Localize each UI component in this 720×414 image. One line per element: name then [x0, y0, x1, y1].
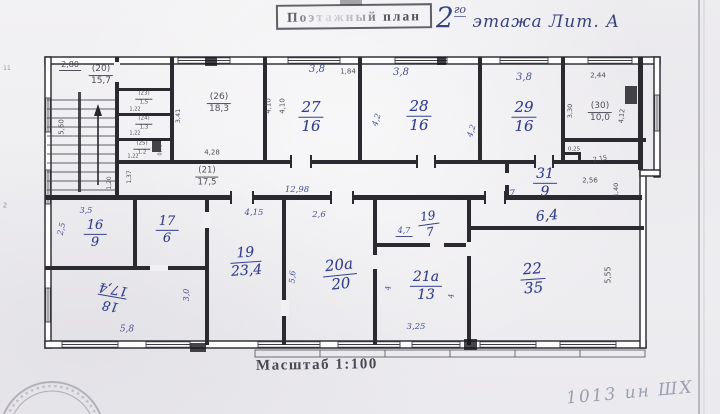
scan-edge-mark: 2	[3, 203, 7, 210]
dimension-label: 3,8	[516, 73, 532, 83]
room-label: 2916	[511, 100, 536, 135]
room-label: 2816	[406, 99, 431, 134]
room-label: 1817,4	[95, 280, 129, 315]
room-label: 21а13	[410, 270, 442, 302]
dimension-label: 3,25	[407, 323, 426, 332]
room-label: 1923,4	[229, 245, 262, 279]
dimension-label: 5,6	[289, 270, 298, 283]
dimension-label: 1,20	[107, 176, 113, 189]
floor-number: 2	[436, 1, 454, 34]
dimension-label: 3,8	[309, 65, 325, 75]
dimension-label: 5,55	[604, 267, 612, 284]
dimension-label: 4,12	[618, 108, 626, 123]
room-label: 2716	[298, 100, 323, 135]
room-label: (21)17,5	[195, 167, 218, 188]
dimension-label: 5,60	[59, 119, 66, 135]
room-label: 2235	[519, 261, 546, 297]
room-label: 169	[84, 219, 107, 249]
room-label: 176	[156, 215, 179, 245]
room-label: 319	[533, 167, 557, 199]
room-label: (26)18,3	[207, 93, 231, 115]
dimension-label: 2,44	[590, 73, 606, 80]
dimension-label: 4,10	[266, 98, 273, 114]
dimension-label: 5,8	[120, 326, 134, 335]
room-label: (30)10,0	[588, 102, 612, 124]
scan-edge-mark: 11	[3, 66, 11, 72]
dimension-label: 1,40	[613, 183, 620, 197]
dimension-label: 4,10	[280, 98, 287, 114]
room-label: (24)1,3	[135, 117, 152, 132]
handwritten-footer-note: 1013 ин ШХ	[565, 377, 694, 408]
room-label: 6,4	[535, 208, 558, 224]
dimension-label: 2,80	[59, 61, 81, 71]
room-label: (20)15,7	[89, 65, 113, 87]
scale-label: Масштаб 1:100	[256, 356, 378, 375]
dimension-label: 2,6	[312, 211, 326, 220]
dimension-label: 1,22	[127, 155, 138, 160]
dimension-label: 7	[509, 191, 515, 200]
dimension-label: 4,2	[371, 113, 383, 128]
dimension-label: 1,84	[340, 69, 356, 76]
room-label: 197	[417, 209, 442, 240]
page-title: 2го этажа Лит. А	[436, 1, 620, 34]
room-label: (23)1,5	[135, 92, 152, 107]
labels-layer: Поэтажный план 2го этажа Лит. А Масштаб …	[0, 0, 720, 414]
dimension-label: 0,76	[159, 144, 164, 155]
title-stamp-box: Поэтажный план	[276, 3, 432, 30]
dimension-label: 1,22	[129, 108, 140, 113]
dimension-label: 1,22	[129, 132, 140, 137]
floor-title-rest: этажа Лит. А	[466, 12, 620, 32]
dimension-label: 4,2	[466, 124, 478, 139]
dimension-label: 3,8	[393, 68, 409, 78]
dimension-label: 1,37	[127, 170, 133, 183]
dimension-label: 2,56	[582, 178, 598, 185]
title-stamp-text: Поэтажный план	[287, 8, 421, 25]
dimension-label: 3,30	[567, 104, 574, 118]
dimension-label: 3,0	[183, 289, 191, 302]
dimension-label: 4	[386, 286, 393, 290]
dimension-label: 2,5	[57, 222, 67, 236]
floor-ordinal-suffix: го	[454, 3, 466, 17]
dimension-label: 3,5	[80, 207, 93, 215]
dimension-label: 4,15	[245, 209, 264, 218]
dimension-label: 4	[449, 294, 456, 298]
dimension-label: 0,25	[568, 147, 580, 153]
room-label: 20а20	[321, 256, 358, 294]
dimension-label: 3,41	[175, 109, 182, 123]
dimension-label: 12,98	[285, 186, 309, 195]
dimension-label: 2,15	[592, 155, 607, 163]
dimension-label: 4,28	[204, 150, 220, 157]
scanned-floor-plan: Поэтажный план 2го этажа Лит. А Масштаб …	[0, 0, 720, 414]
dimension-label: 4,7	[396, 227, 413, 237]
